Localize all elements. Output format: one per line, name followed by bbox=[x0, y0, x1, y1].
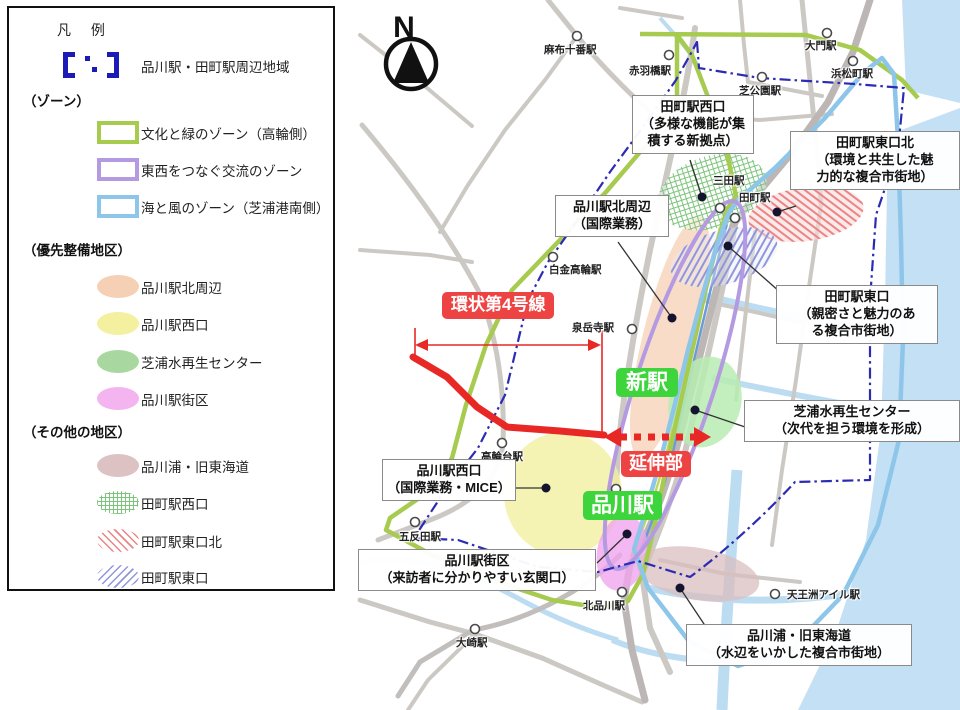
legend-item-zone-purple: 東西をつなぐ交流のゾーン bbox=[9, 157, 333, 183]
legend-item-shinagawa-west: 品川駅西口 bbox=[9, 311, 333, 337]
legend-panel: 凡 例 品川駅・田町駅周辺地域 （ゾーン） 文化と緑のゾーン（高輪側） 東西をつ… bbox=[7, 6, 335, 591]
station-label-kitashinagawa: 北品川駅 bbox=[583, 598, 625, 613]
legend-item-tamachi-east-north: 田町駅東口北 bbox=[9, 528, 333, 554]
legend-item-shibaura-center: 芝浦水再生センター bbox=[9, 349, 333, 375]
shinagawa-west-swatch bbox=[97, 312, 139, 335]
legend-item-shinagawa-gaiku: 品川駅街区 bbox=[9, 386, 333, 412]
callout-tamachi-east-north: 田町駅東口北 （環境と共生した魅 力的な複合市街地） bbox=[790, 131, 960, 190]
station-label-shirokane: 白金高輪駅 bbox=[549, 262, 602, 277]
callout-shinagawa-west: 品川駅西口 （国際業務・MICE） bbox=[382, 459, 516, 501]
station-label-akabanebashi: 赤羽橋駅 bbox=[629, 63, 671, 78]
boundary-bracket-icon bbox=[63, 52, 119, 78]
station-label-tamachi: 田町駅 bbox=[739, 190, 771, 205]
callout-shinagawaura: 品川浦・旧東海道 （水辺をいかした複合市街地） bbox=[686, 624, 912, 666]
callout-shibaura-center: 芝浦水再生センター （次代を担う環境を形成） bbox=[744, 400, 960, 442]
station-label-tennozu: 天王洲アイル駅 bbox=[787, 587, 860, 602]
legend-section-priority: （優先整備地区） bbox=[23, 239, 131, 259]
tamachi-west-swatch bbox=[97, 491, 139, 514]
north-label: N bbox=[393, 11, 415, 44]
planning-map-figure: N 麻布十番駅 赤羽橋駅 大門駅 浜松町駅 芝公園駅 三田駅 田町駅 白金高輪駅… bbox=[0, 0, 960, 710]
shibaura-center-swatch bbox=[97, 350, 139, 373]
legend-section-zones: （ゾーン） bbox=[23, 90, 90, 110]
zone-green-swatch bbox=[97, 121, 139, 144]
station-label-osaki: 大崎駅 bbox=[456, 635, 488, 650]
station-label-hamamatsucho: 浜松町駅 bbox=[831, 66, 873, 81]
legend-item-zone-green: 文化と緑のゾーン（高輪側） bbox=[9, 120, 333, 146]
shinagawa-station-tag: 品川駅 bbox=[583, 491, 662, 520]
station-label-mita: 三田駅 bbox=[713, 173, 745, 188]
legend-section-other: （その他の地区） bbox=[23, 421, 131, 441]
station-label-sengakuji: 泉岳寺駅 bbox=[572, 320, 614, 335]
callout-tamachi-east: 田町駅東口 （親密さと魅力のあ る複合市街地） bbox=[776, 285, 938, 344]
tamachi-east-north-swatch bbox=[97, 529, 139, 552]
shinagawa-gaiku-swatch bbox=[97, 387, 139, 410]
north-arrow-icon: N bbox=[386, 11, 436, 89]
station-label-azabujuban: 麻布十番駅 bbox=[544, 42, 597, 57]
legend-title: 凡 例 bbox=[57, 20, 113, 40]
callout-shinagawa-gaiku: 品川駅街区 （来訪者に分かりやすい玄関口） bbox=[358, 549, 596, 591]
shinagawa-north-swatch bbox=[97, 275, 139, 298]
legend-item-shinagawaura: 品川浦・旧東海道 bbox=[9, 453, 333, 479]
legend-item-tamachi-west: 田町駅西口 bbox=[9, 490, 333, 516]
zone-purple-swatch bbox=[97, 158, 139, 181]
extension-tag: 延伸部 bbox=[621, 451, 691, 477]
legend-item-shinagawa-north: 品川駅北周辺 bbox=[9, 274, 333, 300]
callout-shinagawa-north: 品川駅北周辺 （国際業務） bbox=[555, 195, 669, 237]
callout-tamachi-west: 田町駅西口 （多様な機能が集 積する新拠点） bbox=[632, 95, 754, 154]
ring-road-4-tag: 環状第4号線 bbox=[442, 292, 554, 319]
legend-item-tamachi-east: 田町駅東口 bbox=[9, 564, 333, 590]
station-label-gotanda: 五反田駅 bbox=[399, 529, 441, 544]
new-station-tag: 新駅 bbox=[616, 368, 678, 397]
legend-boundary-label: 品川駅・田町駅周辺地域 bbox=[141, 56, 290, 76]
zone-blue-swatch bbox=[97, 195, 139, 218]
tamachi-east-swatch bbox=[97, 565, 139, 588]
station-label-daimon: 大門駅 bbox=[805, 38, 837, 53]
shinagawaura-swatch bbox=[97, 454, 139, 477]
legend-item-zone-blue: 海と風のゾーン（芝浦港南側） bbox=[9, 194, 333, 220]
